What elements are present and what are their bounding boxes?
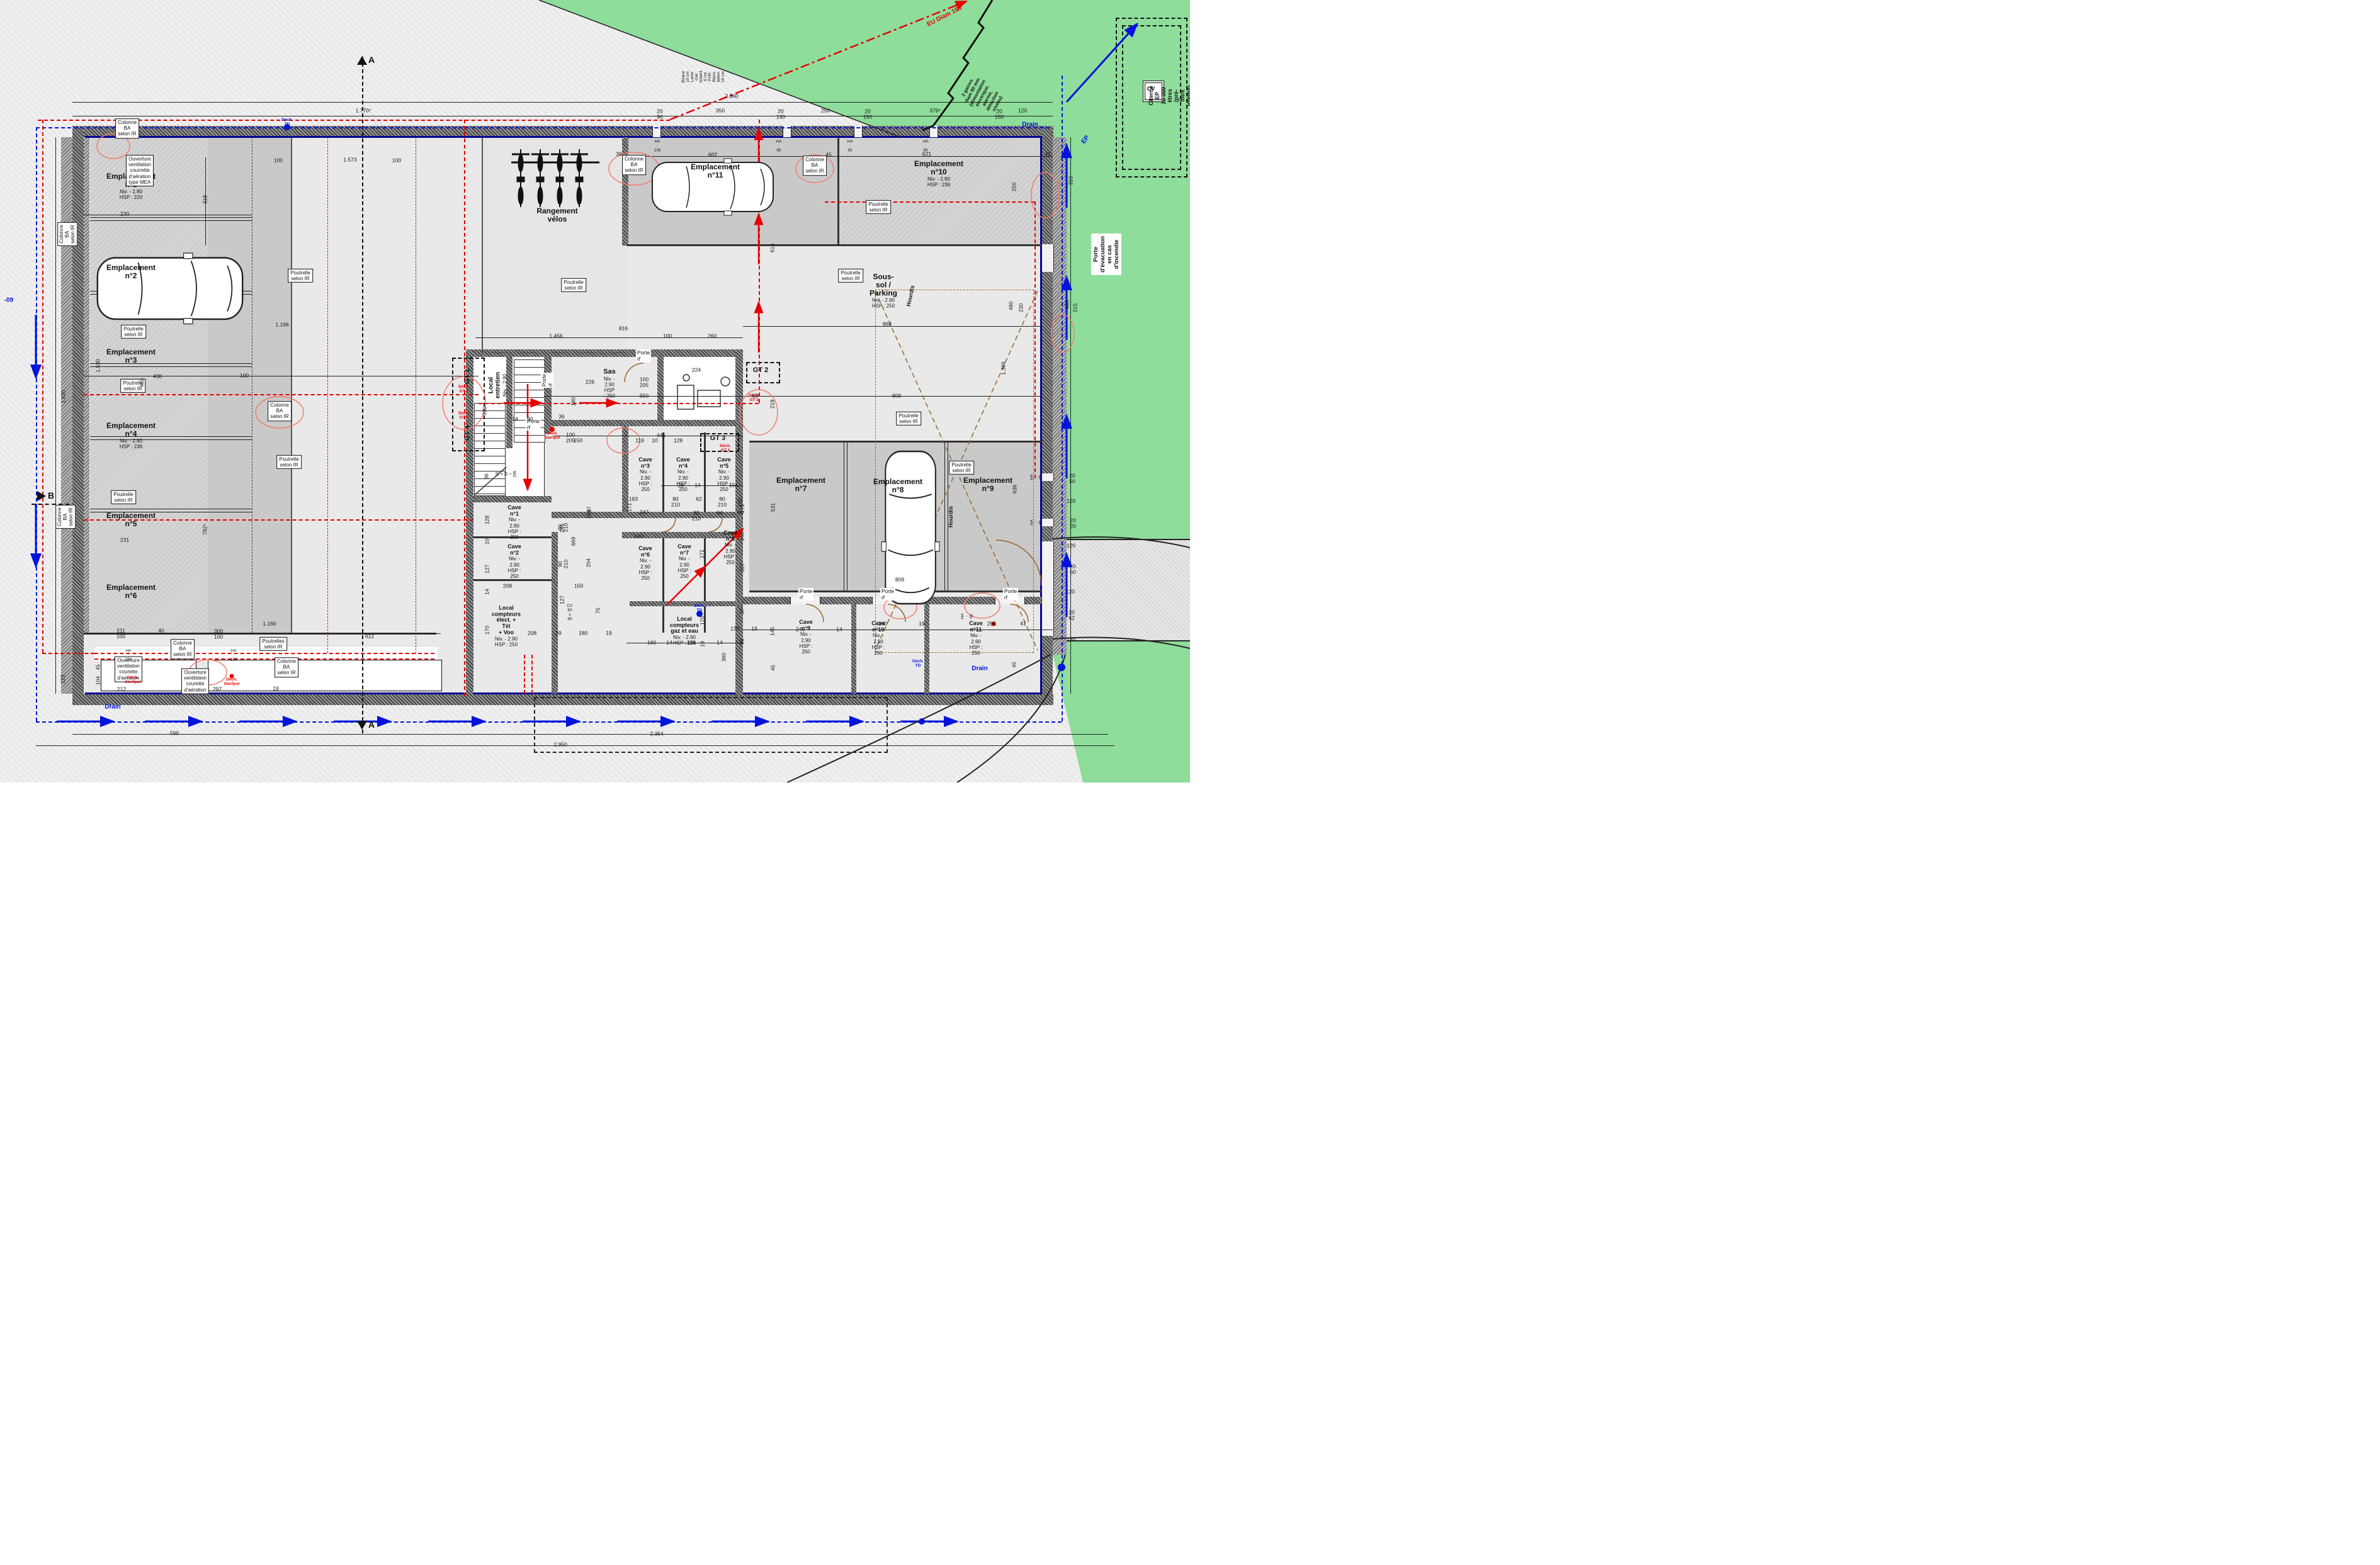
annotation-label: Ouverture ventilation courette d'aératio… [181, 669, 209, 694]
dimension-label: 1.620 [61, 390, 67, 403]
dimension-label: 250 [1012, 183, 1017, 191]
dimension-label: 19 [919, 621, 924, 627]
annotation-label: HA : 85 [776, 140, 782, 153]
sterfput-dots [131, 124, 1066, 725]
dimension-label: 318 [203, 195, 208, 204]
annotation-label: Colonne BA selon IR [57, 222, 77, 246]
annotation-label: Déch. TD [912, 659, 924, 668]
dimension-label: 156 [729, 483, 738, 489]
dimension-label: 809 [895, 577, 904, 583]
annotation-label: Citerne EP 20 000 litres (pré-filtre int… [1148, 86, 1190, 106]
dimension-label: 40 [158, 628, 164, 634]
dimension-label: 868 [883, 322, 892, 327]
annotation-label: Déch. TD [694, 604, 705, 613]
dimension-label: 360 [722, 653, 727, 662]
annotation-label: Drain [105, 704, 121, 711]
annotation-label: Déch. GT 1 [458, 385, 470, 393]
dimension-label: 14 [836, 627, 842, 633]
dimension-label: 782⁵ [203, 524, 208, 535]
dimension-label: 96 [740, 638, 745, 644]
section-marker-a: A [357, 721, 367, 730]
dimension-label: 90 210 [557, 523, 568, 532]
dimension-label: 171 [627, 503, 633, 512]
annotation-label: HA : 65 [961, 614, 974, 619]
dimension-label: 240 [878, 621, 887, 627]
dimension-label: 247 [640, 510, 649, 516]
dimension-label: 621 [922, 152, 931, 157]
dimension-label: 62 [696, 497, 701, 502]
dimension-label: 816 [619, 326, 628, 332]
dimension-label: 171 [700, 550, 705, 558]
ep-stormwater-diagonal-arrow [1067, 24, 1137, 102]
dimension-label: 45 [771, 665, 776, 670]
room-label: Emplacement n°10Niv. - 2.90 HSP : 236 [914, 160, 963, 188]
dimension-label: 127 [485, 565, 490, 573]
room-label: SasNiv. - 2.90 HSP : 250 [603, 369, 616, 400]
dimension-label: 211 100 [116, 628, 125, 638]
dimension-label: 20 130 [776, 108, 785, 119]
section-marker-a: A [357, 56, 367, 65]
annotation-label: Colonne BA selon IR [115, 118, 139, 138]
dimension-label: 480 [1009, 302, 1014, 310]
annotation-label: Poutrelle selon IR [896, 412, 921, 426]
dimension-label: 39 [555, 631, 561, 636]
dimension-label: 150 [574, 438, 582, 444]
annotation-label: -09 [4, 297, 13, 304]
dimension-label: 130 [730, 626, 739, 632]
annotation-label: Poutrelle selon IR [111, 490, 136, 504]
section-cut-triangle [357, 721, 367, 730]
dimension-label: 227 [740, 563, 745, 572]
dimension-label: 1.196 [275, 322, 288, 328]
dimension-label: 80 210 [692, 510, 701, 521]
annotation-label: Porte rf [636, 349, 651, 362]
room-label: Emplacement n°3 [106, 348, 156, 364]
annotation-label: 16 x 18 = 285 [496, 471, 518, 478]
dimension-label: 14 [485, 589, 490, 594]
dimension-label: 1.456 [549, 334, 562, 339]
annotation-label: Poutrelle selon IR [561, 278, 586, 292]
road-edge-curves [787, 537, 1190, 782]
dimension-label: 120 [1018, 108, 1027, 114]
dimension-label: 250 [821, 108, 830, 114]
dimension-label: 330 [482, 407, 488, 415]
dimension-label: 19 [700, 641, 706, 647]
dimension-label: 120 [1066, 589, 1075, 595]
dimension-label: 612 [365, 634, 374, 640]
room-label: Local compteurs élect. + Tél + VooNiv. -… [492, 606, 521, 648]
dimension-label: 100 [392, 158, 401, 164]
eu-sewer-diagonal-line [670, 1, 966, 120]
dimension-label: 20 150 [863, 108, 872, 119]
dimension-label: 20 90 [657, 108, 662, 119]
dimension-label: 2.950 [553, 742, 567, 748]
annotation-label: CV 80 x 80 [567, 604, 572, 621]
annotation-label: Déch. Sterfput [125, 675, 141, 684]
dimension-label: 297 [213, 687, 222, 692]
dimension-label: 260 [708, 334, 717, 339]
dimension-label: 130 [1067, 637, 1075, 643]
dimension-label: 36 [484, 473, 490, 479]
dimension-label: 208 [503, 584, 512, 589]
dimension-label: 128 [485, 516, 490, 524]
room-label: Cave n°11Niv. - 2.90 HSP : 250 [969, 621, 983, 656]
dimension-label: 80 210 [671, 496, 680, 507]
green-boundary-line [539, 0, 901, 137]
dimension-label: 240 [796, 627, 805, 633]
dimension-label: 602 [708, 152, 717, 158]
dimension-label: 170 [700, 616, 706, 625]
dimension-label: 204 [586, 558, 592, 567]
annotation-label: Drain [1022, 121, 1038, 128]
dimension-label: 100 [738, 498, 744, 507]
dimension-label: 450 [1065, 300, 1070, 309]
dimension-label: 59 [752, 393, 757, 399]
annotation-label: Drain [972, 665, 988, 672]
equipment-symbols [475, 162, 730, 495]
dimension-label: 41 [1045, 152, 1050, 157]
room-label: Emplacement n°7 [776, 477, 825, 493]
dimension-label: 45 [825, 152, 831, 158]
dimension-label: 36 [558, 414, 564, 420]
dimension-label: 14 [666, 640, 672, 646]
annotation-label: GT 1 [463, 369, 471, 384]
dimension-label: 300 100 [214, 628, 223, 639]
dimension-label: 120 [1067, 543, 1075, 549]
dimension-label: 14 [512, 417, 518, 422]
dimension-label: 180 [579, 631, 587, 636]
dimension-label: 140 [740, 532, 745, 541]
dimension-label: 64 [717, 511, 722, 516]
annotation-label: Déch. GT 4 [458, 411, 470, 420]
dimension-label: 104 [96, 676, 101, 685]
annotation-label: HA : 65 [1030, 475, 1043, 480]
annotation-label: HA : 105 [654, 140, 661, 153]
room-label: Rangement vélos [536, 207, 577, 223]
room-label: Local entretienNiv. - 2.90 [489, 372, 508, 398]
annotation-label: Porte rf [541, 373, 553, 388]
dimension-label: 1.530 [96, 359, 101, 372]
annotation-label: Colonne BA selon IR [803, 155, 827, 176]
room-label: Cave n°6Niv. - 2.90 HSP : 250 [638, 546, 652, 581]
dimension-label: 231 [120, 538, 129, 543]
annotation-label: GT 4 [463, 426, 471, 441]
dimension-label: 550 [640, 393, 649, 399]
dimension-label: 212 [117, 687, 126, 692]
dimension-label: 450 [140, 378, 145, 387]
annotation-label: Poutrelle selon IR [838, 269, 863, 283]
dimension-label: 20 62 [1068, 609, 1074, 620]
annotation-label: Hourdis [948, 506, 954, 528]
dimension-label: 97 [587, 506, 592, 512]
dimension-label: 183 [629, 497, 638, 502]
dimension-label: 19 [751, 626, 757, 632]
dimension-label: 170 [485, 626, 490, 635]
dimension-label: 28 [677, 483, 683, 489]
annotation-label: Porte d'évacuation en cas d'incendie [1091, 234, 1121, 275]
annotation-label: Ouverture ventilation courrette d'aérati… [126, 155, 154, 186]
annotation-label: GT 3 [710, 434, 725, 442]
annotation-label: HA : 65 [1030, 520, 1043, 526]
section-cut-triangle [37, 491, 46, 501]
room-label: Cave n°8Niv. - 2.90 HSP : 250 [723, 530, 737, 565]
section-marker-b: B [37, 492, 47, 500]
dimension-label: 2.354 [650, 732, 663, 737]
dimension-label: 230 [1019, 303, 1024, 312]
annotation-label: Porte rf [1003, 588, 1018, 601]
dimension-label: 350 [716, 108, 725, 114]
dimension-label: 160 [647, 640, 656, 646]
dimension-label: 215 [1073, 303, 1079, 312]
dimension-label: 14 [694, 483, 700, 489]
annotation-label: Colonne BA selon IR [622, 155, 646, 175]
annotation-label: Colonne BA selon IR [275, 657, 298, 677]
annotation-label: Porte rf [798, 588, 813, 601]
dimension-label: 140 [634, 534, 643, 540]
annotation-label: HA : 150 [125, 649, 132, 662]
dimension-label: 20 50 [1069, 473, 1075, 483]
dimension-label: 75 [596, 607, 601, 613]
dimension-label: 531 [771, 503, 776, 512]
dimension-label: 636 [1012, 485, 1018, 494]
dimension-label: 445 [657, 433, 666, 439]
annotation-label: Poutrelle selon IR [276, 455, 302, 469]
room-label: Emplacement n°4Niv. - 2.90 HSP : 236 [106, 422, 156, 449]
room-label: Emplacement n°9 [963, 477, 1012, 493]
room-label: Emplacement n°2 [106, 264, 156, 280]
dimension-label: 41 [1020, 621, 1026, 627]
dimension-label: 296 [987, 621, 996, 627]
dimension-label: 139 [687, 640, 696, 646]
room-label: Emplacement n°5 [106, 512, 156, 528]
dimension-label: 80 210 [718, 496, 727, 507]
dimension-label: 20 150 [995, 108, 1004, 119]
dimension-label: 2.960 [725, 94, 738, 99]
annotation-label: HA : 150 [230, 649, 237, 662]
annotation-label: GT 2 [753, 366, 768, 374]
annotation-label: Poutrelle selon IR [288, 269, 313, 283]
dimension-label: 596 [170, 731, 179, 737]
dimension-label: 45 [1012, 662, 1017, 667]
dimension-label: 145 [770, 627, 776, 636]
dimension-label: 430 [153, 374, 162, 380]
room-label: Emplacement n°8 [873, 478, 922, 494]
annotation-label: Colonne BA selon IR [171, 639, 195, 659]
dimension-label: 219 [770, 400, 776, 409]
dimension-label: 128 [674, 438, 683, 444]
dimension-label: 1.573 [343, 157, 356, 163]
dimension-label: 123 [60, 675, 66, 684]
dimension-label: 226 [586, 380, 594, 385]
dimension-label: 127 [560, 596, 565, 604]
dimension-label: 224 [692, 368, 701, 373]
dimension-label: 45 [96, 664, 101, 670]
dimension-label: 1.160 [263, 621, 276, 627]
section-letter: A [368, 720, 375, 730]
dimension-label: 379⁵ [929, 108, 941, 114]
annotation-label: HA : 65 [847, 140, 853, 153]
dimension-label: 809 [892, 393, 901, 399]
dimension-label: 19 [273, 686, 278, 692]
dimension-label: 37 [740, 608, 745, 614]
annotation-label: Déch. Sterfput [224, 677, 240, 686]
dimension-label: 100 [274, 158, 283, 164]
dimension-label: 1.770⁵ [356, 108, 371, 114]
dimension-label: 100 [240, 373, 249, 379]
annotation-label: Porte rf [880, 588, 895, 601]
annotation-label: Colonne BA selon IR [55, 505, 76, 529]
dimension-label: 1.366 [1001, 361, 1007, 375]
section-cut-triangle [357, 56, 367, 65]
annotation-label: Déch. Sterfput [545, 431, 560, 440]
dimension-label: 90 [527, 417, 533, 422]
dimension-label: 616 [770, 244, 776, 252]
annotation-label: Poutrelle selon IR [121, 325, 146, 339]
dimension-label: 10 [652, 438, 657, 444]
dimension-label: 14 [717, 640, 722, 646]
annotation-label: Déch. TD [281, 118, 293, 127]
annotation-label: Poutrelle selon IR [949, 461, 974, 475]
room-label: Cave n°9Niv. - 2.90 HSP : 250 [799, 619, 813, 655]
dimension-label: 90 210 [557, 560, 568, 568]
annotation-label: Poutrelles selon IR [259, 637, 287, 651]
dimension-label: 180 [571, 397, 577, 406]
dimension-label: 100 [663, 334, 672, 339]
dimension-label: 20 60 [1070, 563, 1075, 574]
annotation-label: Déch. GT 3 [720, 444, 731, 453]
annotation-label: Colonne BA selon IR [268, 401, 292, 421]
dimension-label: 39 [616, 152, 621, 157]
annotation-label: Brique 10 cm Lame d'air Isolant 6 cm PUR… [681, 71, 725, 82]
room-label: Sous-sol / ParkingNiv. - 2.90 HSP : 250 [870, 273, 897, 308]
dimension-label: 310 [1068, 176, 1074, 185]
dimension-label: 150 [574, 584, 583, 589]
dimension-label: 119 [635, 438, 644, 444]
dimension-label: 669 [571, 537, 577, 546]
room-label: Emplacement n°11 [691, 163, 740, 179]
dimension-label: 208 [528, 631, 536, 636]
dimension-label: 80 [737, 511, 743, 516]
section-letter: A [368, 55, 375, 65]
annotation-label: Poutrelle selon IR [866, 200, 891, 214]
section-letter: B [48, 490, 54, 500]
room-label: Cave n°3Niv. - 2.90 HSP : 250 [638, 457, 652, 492]
dimension-label: 19 [606, 631, 611, 636]
room-label: Cave n°7Niv. - 2.90 HSP : 250 [677, 544, 691, 579]
dimension-label: 10 [485, 538, 490, 544]
room-label: Cave n°1Niv. - 2.90 HSP : 250 [507, 505, 521, 540]
dimension-label: 230 [120, 212, 129, 217]
dimension-label: 20 20 [1070, 517, 1075, 528]
dimension-label: 100 205 [640, 376, 649, 387]
floor-plan-canvas: Emplacement n°1Niv. - 2.90 HSP : 220Empl… [0, 0, 1190, 782]
room-label: Cave n°2Niv. - 2.90 HSP : 250 [507, 544, 521, 579]
dimension-label: 120 [1067, 499, 1075, 504]
room-label: Emplacement n°6 [106, 584, 156, 600]
